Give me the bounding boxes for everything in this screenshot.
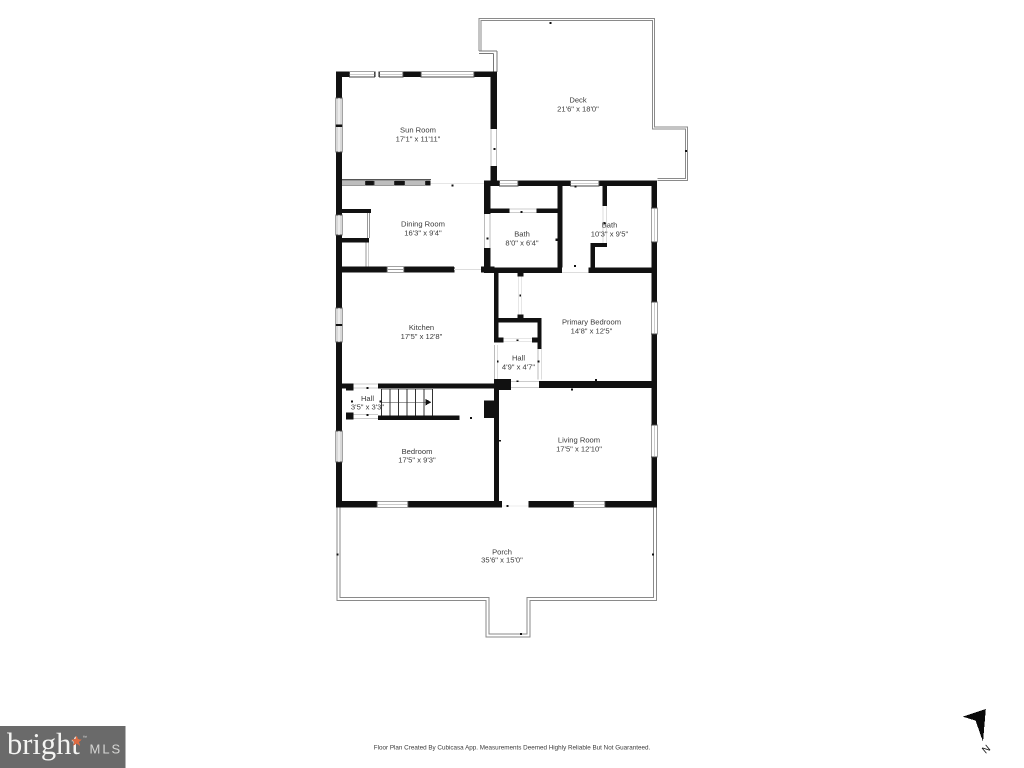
svg-text:Living Room: Living Room xyxy=(558,435,600,444)
svg-text:Bath: Bath xyxy=(602,220,618,229)
svg-text:16'3" x 9'4": 16'3" x 9'4" xyxy=(404,228,442,237)
svg-text:Dining Room: Dining Room xyxy=(401,219,445,228)
svg-text:10'3" x 9'5": 10'3" x 9'5" xyxy=(591,229,629,238)
svg-text:Floor Plan Created By Cubicasa: Floor Plan Created By Cubicasa App. Meas… xyxy=(374,745,651,752)
svg-text:21'6" x 18'0": 21'6" x 18'0" xyxy=(557,104,599,113)
svg-text:4'9" x 4'7": 4'9" x 4'7" xyxy=(502,362,536,371)
svg-text:Hall: Hall xyxy=(512,353,525,362)
svg-text:17'5" x 9'3": 17'5" x 9'3" xyxy=(398,455,436,464)
svg-text:17'1" x 11'11": 17'1" x 11'11" xyxy=(396,134,441,143)
svg-text:Kitchen: Kitchen xyxy=(409,323,434,332)
svg-text:Sun Room: Sun Room xyxy=(400,125,436,134)
svg-text:MLS: MLS xyxy=(90,742,123,757)
svg-text:Bath: Bath xyxy=(514,229,530,238)
svg-text:8'0" x 6'4": 8'0" x 6'4" xyxy=(505,238,539,247)
svg-text:3'5" x 3'3": 3'5" x 3'3" xyxy=(351,402,385,411)
svg-text:17'5" x 12'10": 17'5" x 12'10" xyxy=(556,444,602,453)
svg-text:™: ™ xyxy=(83,735,88,740)
svg-text:35'6" x 15'0": 35'6" x 15'0" xyxy=(481,555,523,564)
svg-text:14'8" x 12'5": 14'8" x 12'5" xyxy=(571,326,613,335)
svg-text:bright: bright xyxy=(7,727,80,761)
svg-text:Primary Bedroom: Primary Bedroom xyxy=(562,317,621,326)
svg-text:17'5" x 12'8": 17'5" x 12'8" xyxy=(401,332,443,341)
svg-text:Deck: Deck xyxy=(569,95,587,104)
